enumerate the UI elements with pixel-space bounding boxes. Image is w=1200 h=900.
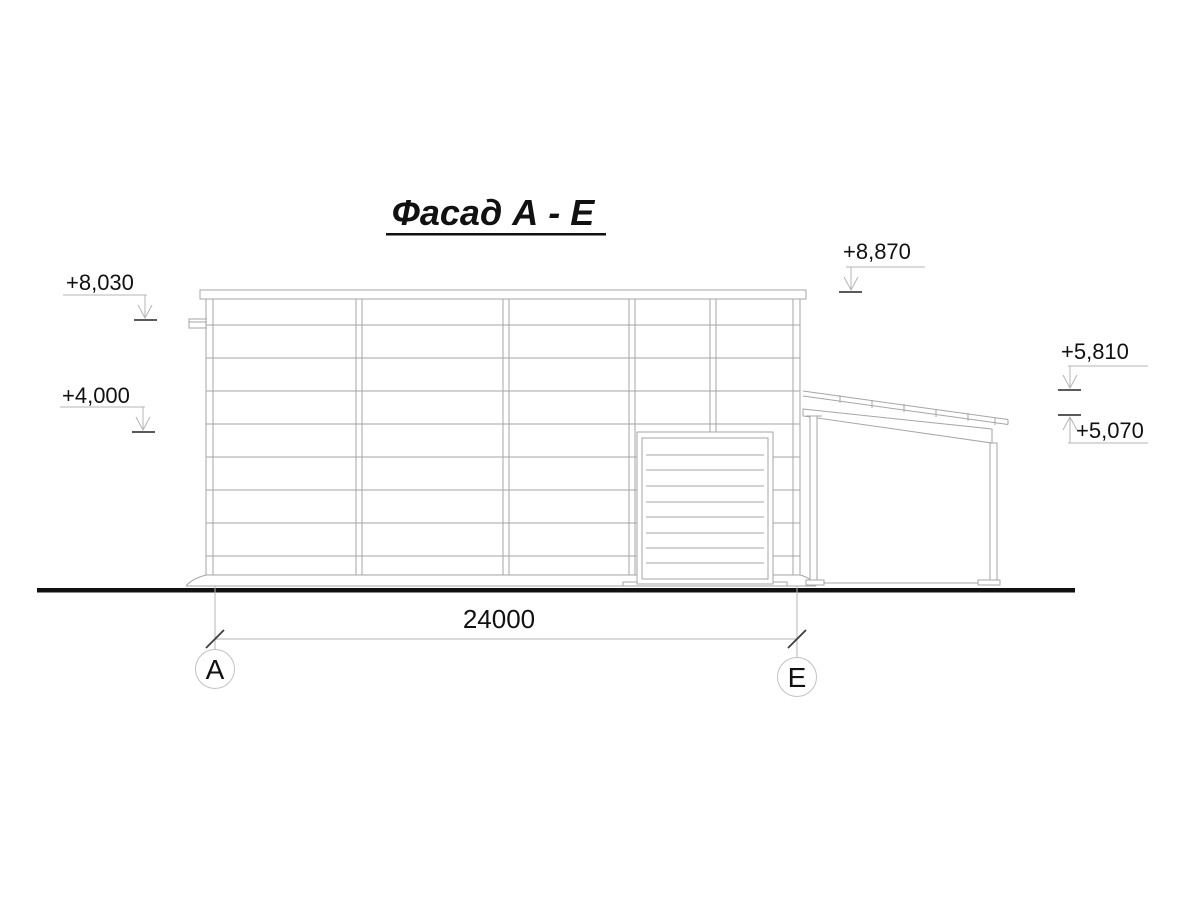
- level-mark-8030: +8,030: [63, 270, 157, 320]
- level-mark-5810: +5,810: [1058, 339, 1148, 390]
- canopy-right-column: [990, 443, 997, 580]
- dimension-24000: 24000: [206, 586, 806, 657]
- axis-marker-a: А: [196, 650, 235, 689]
- canopy: [803, 391, 1008, 585]
- axis-marker-e: Е: [778, 658, 817, 697]
- level-value-8030: +8,030: [66, 270, 134, 295]
- canopy-edge-beam: [803, 409, 992, 443]
- sectional-gate: [623, 432, 787, 586]
- title-text: Фасад А - Е: [392, 192, 595, 233]
- level-mark-4000: +4,000: [60, 383, 155, 432]
- canopy-left-column: [810, 416, 817, 580]
- level-mark-8870: +8,870: [839, 239, 925, 292]
- facade-drawing: Фасад А - Е: [0, 0, 1200, 900]
- level-value-8870: +8,870: [843, 239, 911, 264]
- level-value-5810: +5,810: [1061, 339, 1129, 364]
- drawing-title: Фасад А - Е: [386, 192, 606, 234]
- axis-label-e: Е: [788, 662, 807, 693]
- level-value-4000: +4,000: [62, 383, 130, 408]
- right-column-base-plate: [978, 580, 1000, 585]
- parapet-cap: [200, 290, 806, 299]
- dimension-value: 24000: [463, 604, 535, 634]
- level-mark-5070: +5,070: [1058, 415, 1148, 443]
- left-column-base-plate: [806, 580, 824, 585]
- level-value-5070: +5,070: [1076, 418, 1144, 443]
- gutter-outlet: [189, 319, 207, 328]
- axis-label-a: А: [206, 654, 225, 685]
- gate-inner-frame: [642, 438, 768, 579]
